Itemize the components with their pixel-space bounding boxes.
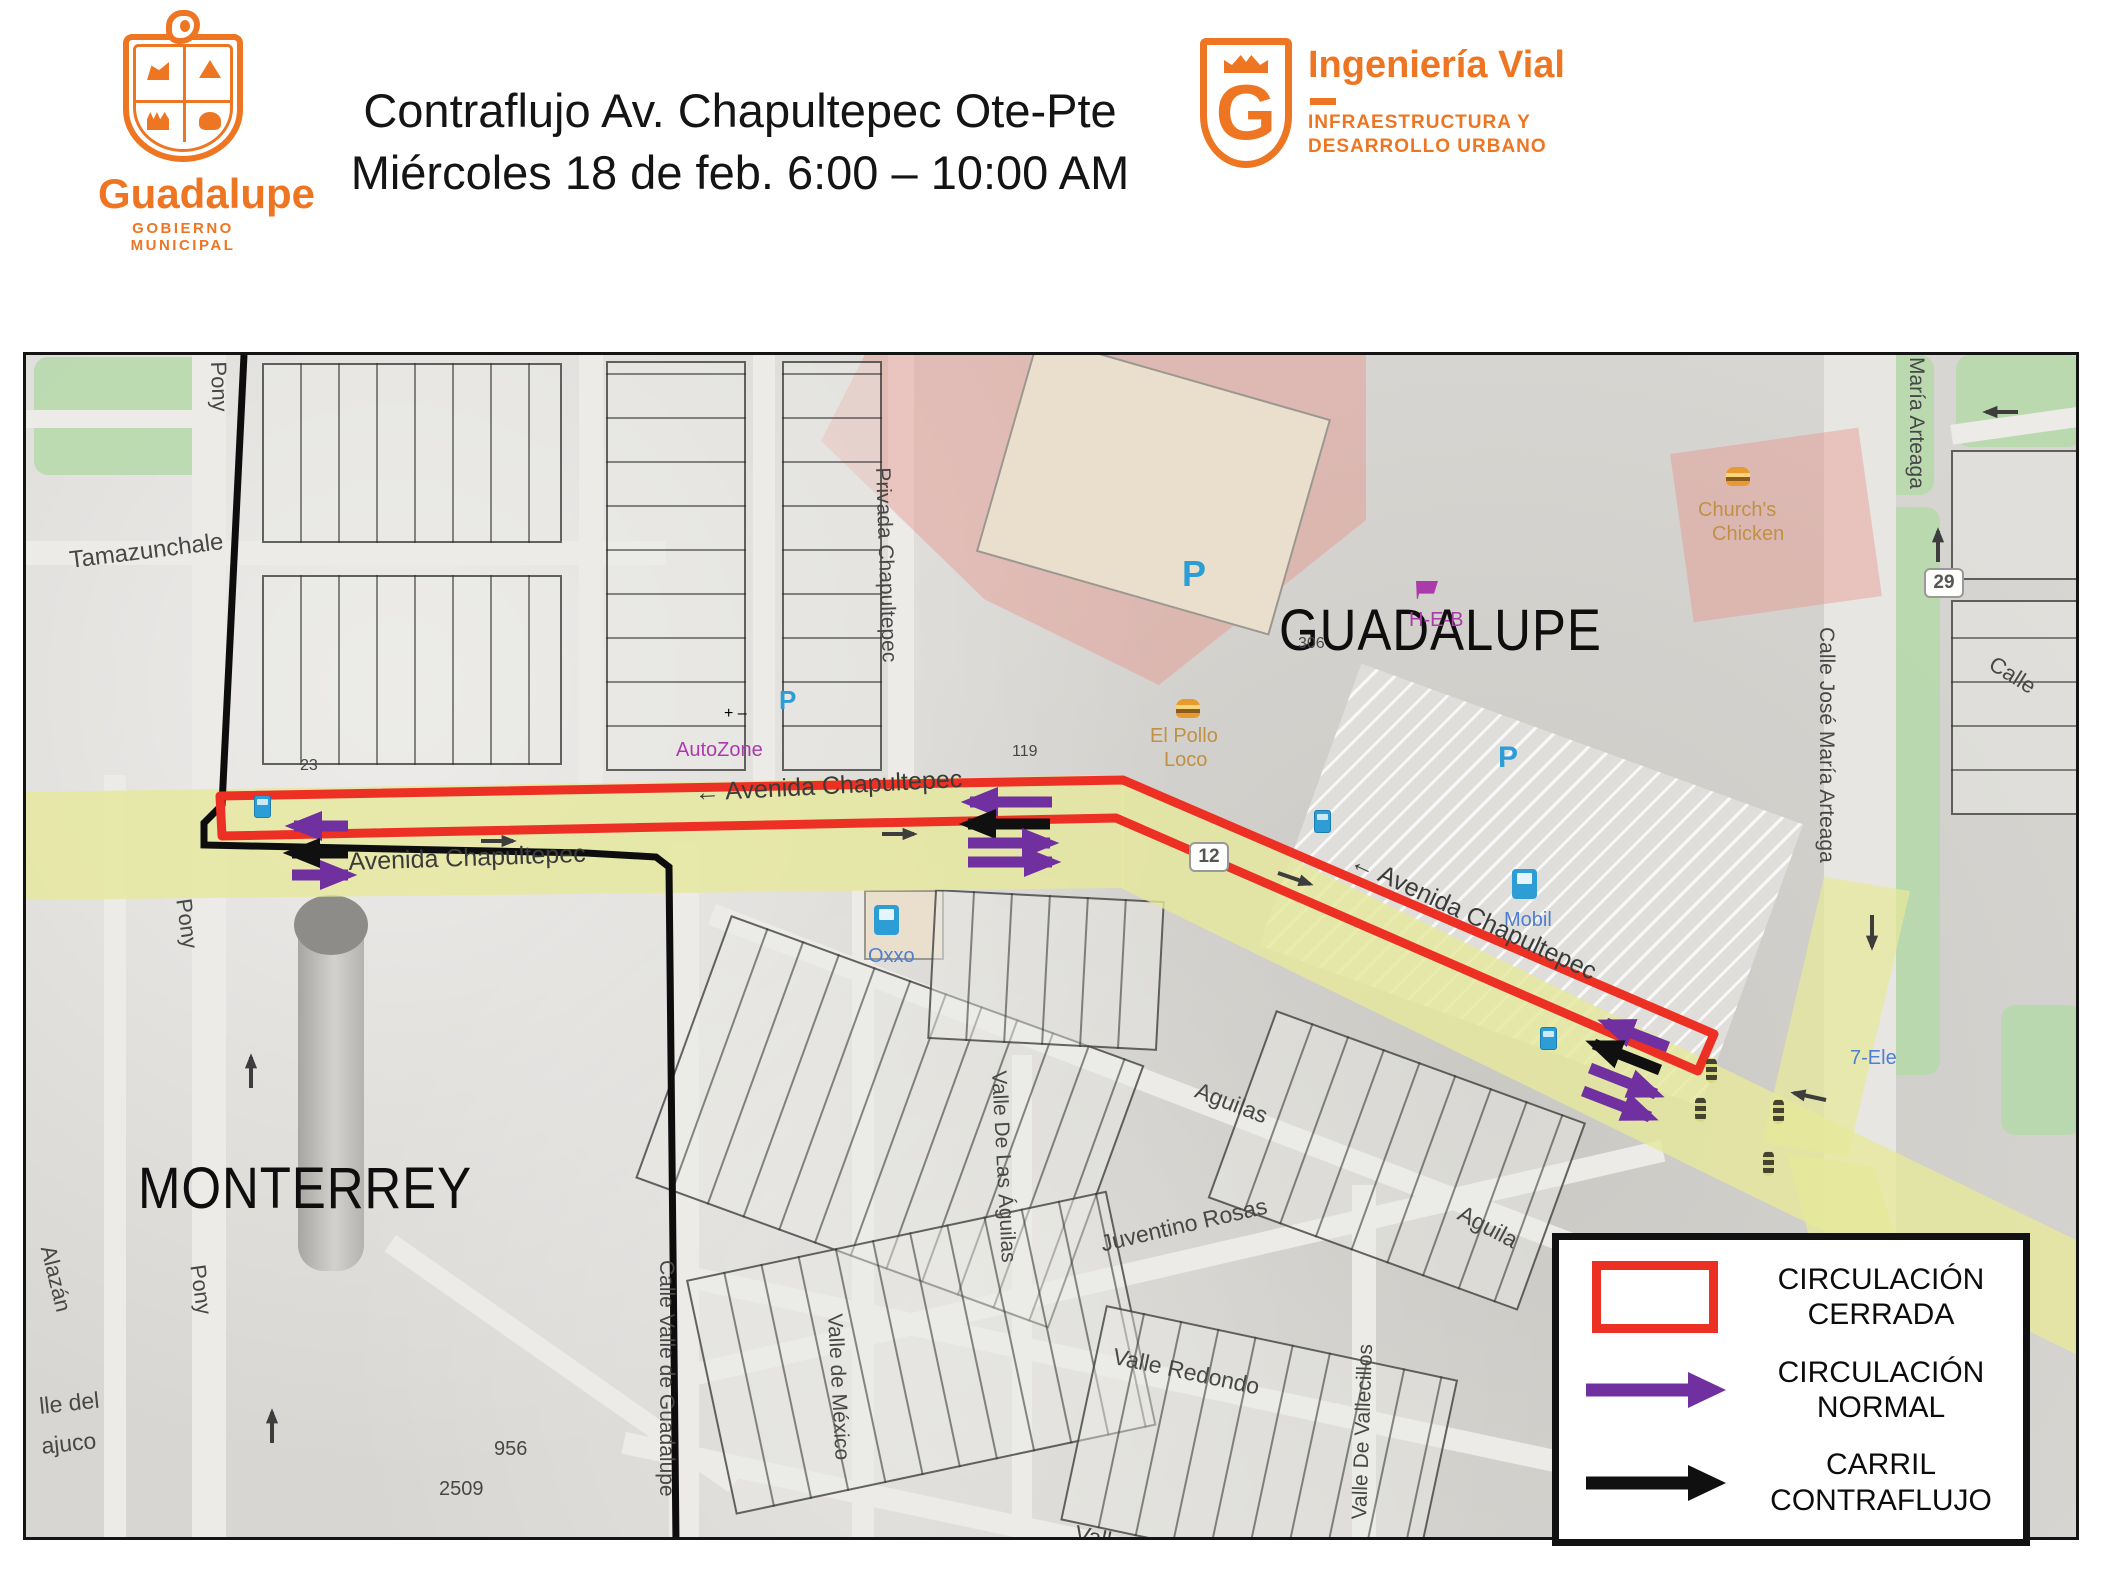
poi-label: Mobil: [1504, 909, 1552, 932]
street-label: 119: [1012, 743, 1038, 761]
ingenieria-vial-shield-icon: G: [1200, 38, 1292, 168]
poi-label: Chicken: [1712, 523, 1784, 546]
fuel-icon: [874, 905, 899, 935]
ingenieria-vial-sub1: INFRAESTRUCTURA Y: [1308, 112, 1531, 134]
bus-icon: [1314, 810, 1331, 833]
slide: Guadalupe GOBIERNO MUNICIPAL Contraflujo…: [0, 0, 2102, 1578]
legend-label: CONTRAFLUJO: [1745, 1483, 2017, 1518]
street-label: Pony: [205, 361, 233, 412]
page-title: Contraflujo Av. Chapultepec Ote-Pte Miér…: [330, 80, 1150, 204]
street-label: 2509: [439, 1478, 484, 1501]
street-label: María Arteaga: [1904, 357, 1928, 489]
street-label: 23: [300, 757, 318, 775]
poi-label: H-E-B: [1409, 609, 1463, 632]
traffic-light-icon: [1773, 1099, 1784, 1124]
battery-icon: + –: [724, 705, 747, 723]
parking-icon: P: [1182, 553, 1206, 595]
fuel-icon: [1512, 869, 1537, 899]
poi-label: El Pollo: [1150, 725, 1218, 748]
bus-icon: [254, 795, 271, 818]
traffic-light-icon: [1763, 1151, 1774, 1176]
ingenieria-vial-name: Ingeniería Vial: [1308, 44, 1565, 87]
purple-arrow-icon: [1580, 1370, 1730, 1410]
poi-label: Loco: [1164, 749, 1207, 772]
parking-icon: P: [1498, 741, 1518, 775]
title-line1: Contraflujo Av. Chapultepec Ote-Pte: [330, 80, 1150, 142]
legend-label: CARRIL: [1745, 1447, 2017, 1482]
traffic-light-icon: [1706, 1058, 1717, 1083]
guadalupe-logo: Guadalupe GOBIERNO MUNICIPAL: [98, 6, 268, 254]
bus-icon: [1540, 1027, 1557, 1050]
legend-row-normal: CIRCULACIÓN NORMAL: [1565, 1355, 2017, 1426]
route-shield: 12: [1189, 842, 1229, 872]
burger-icon: [1176, 699, 1200, 718]
guadalupe-shield-icon: [123, 34, 243, 162]
route-shield: 29: [1924, 568, 1964, 598]
guadalupe-logo-name: Guadalupe: [98, 170, 268, 218]
burger-icon: [1726, 467, 1750, 486]
street-label: 956: [494, 1438, 527, 1461]
traffic-light-icon: [1695, 1097, 1706, 1122]
black-arrow-icon: [1580, 1463, 1730, 1503]
poi-label: Church's: [1698, 499, 1776, 522]
legend-row-contraflow: CARRIL CONTRAFLUJO: [1565, 1447, 2017, 1518]
title-line2: Miércoles 18 de feb. 6:00 – 10:00 AM: [330, 142, 1150, 204]
legend: CIRCULACIÓN CERRADA CIRCULACIÓN NORMAL: [1552, 1233, 2030, 1546]
legend-label: CERRADA: [1745, 1297, 2017, 1332]
street-label: Calle Valle de Guadalupe: [654, 1260, 678, 1497]
parking-icon: P: [779, 685, 796, 716]
poi-label: AutoZone: [676, 739, 763, 762]
city-label: MONTERREY: [138, 1155, 472, 1222]
legend-label: CIRCULACIÓN: [1745, 1355, 2017, 1390]
guadalupe-logo-subtitle: GOBIERNO MUNICIPAL: [98, 220, 268, 254]
municipal-boundary-line: [204, 355, 676, 1540]
poi-label: 7-Ele: [1850, 1047, 1897, 1070]
legend-row-closed: CIRCULACIÓN CERRADA: [1565, 1261, 2017, 1333]
legend-label: CIRCULACIÓN: [1745, 1262, 2017, 1297]
legend-label: NORMAL: [1745, 1390, 2017, 1425]
street-label: Calle José María Arteaga: [1814, 627, 1838, 863]
logo-dash: [1310, 98, 1336, 105]
street-label: ajuco: [40, 1427, 98, 1460]
closed-circulation-symbol: [1592, 1261, 1718, 1333]
poi-label: Oxxo: [868, 945, 915, 968]
street-label: 306: [1298, 635, 1325, 653]
ingenieria-vial-sub2: DESARROLLO URBANO: [1308, 136, 1547, 158]
